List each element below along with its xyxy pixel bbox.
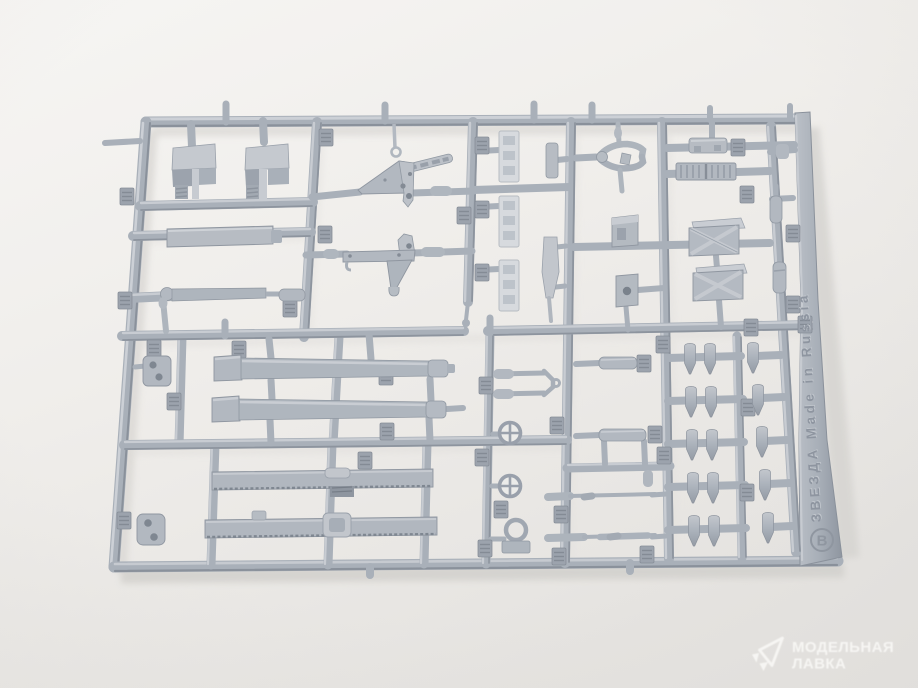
svg-text:B: B [817, 533, 828, 550]
svg-text:МОДЕЛЬНАЯ: МОДЕЛЬНАЯ [792, 639, 894, 656]
svg-text:ЛАВКА: ЛАВКА [792, 656, 846, 673]
